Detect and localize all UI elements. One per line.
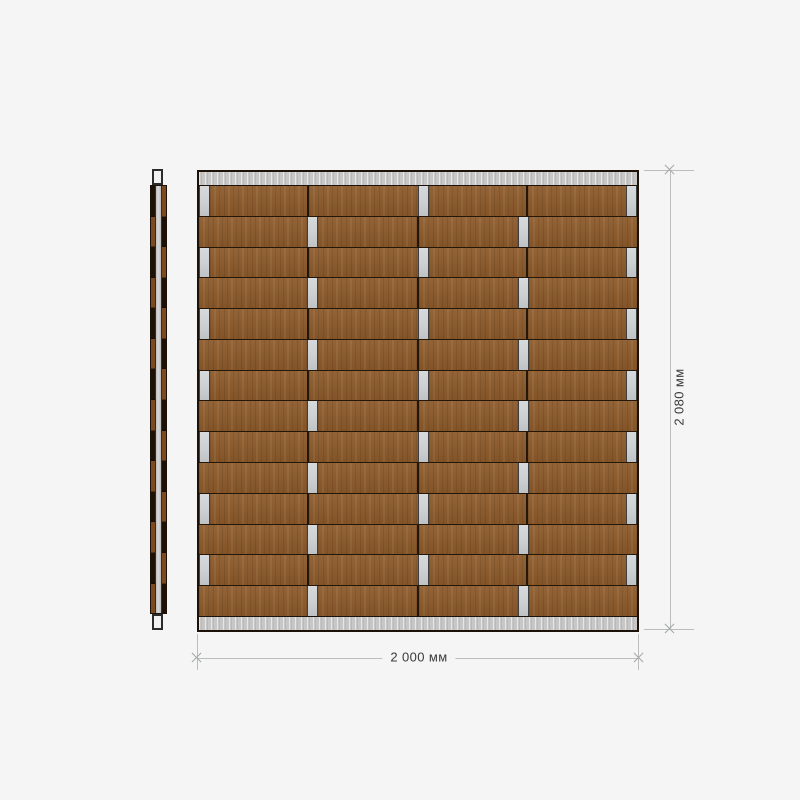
post-gap <box>626 309 637 339</box>
plank <box>307 248 418 278</box>
plank <box>417 401 518 431</box>
post-gap <box>626 494 637 524</box>
plank-row <box>199 586 637 616</box>
post-gap <box>307 525 318 555</box>
plank-row <box>199 555 637 586</box>
post-gap <box>518 586 529 616</box>
plank <box>210 555 307 585</box>
post-gap <box>199 371 210 401</box>
plank-row <box>199 186 637 217</box>
drawing-canvas: 2 000 мм 2 080 мм <box>0 0 800 800</box>
plank <box>529 278 637 308</box>
side-view-body <box>150 185 167 614</box>
plank <box>199 340 307 370</box>
plank-row <box>199 371 637 402</box>
post-gap <box>626 248 637 278</box>
side-plank-edge <box>162 369 166 400</box>
post-gap <box>199 432 210 462</box>
plank <box>429 371 526 401</box>
side-view-post <box>155 186 162 613</box>
post-gap <box>518 278 529 308</box>
plank-row <box>199 309 637 340</box>
post-gap <box>418 555 429 585</box>
plank <box>210 248 307 278</box>
plank <box>307 186 418 216</box>
plank <box>526 186 626 216</box>
side-plank-edge <box>162 461 166 492</box>
plank <box>307 371 418 401</box>
plank <box>307 555 418 585</box>
plank-rows <box>199 186 637 616</box>
post-gap <box>307 463 318 493</box>
side-plank-edge <box>162 186 166 217</box>
plank-row <box>199 432 637 463</box>
plank <box>199 463 307 493</box>
plank <box>529 586 637 616</box>
plank <box>429 309 526 339</box>
plank-row <box>199 248 637 279</box>
post-gap <box>518 340 529 370</box>
plank <box>417 463 518 493</box>
plank <box>210 494 307 524</box>
plank <box>417 586 518 616</box>
plank <box>318 586 417 616</box>
plank <box>429 186 526 216</box>
plank <box>526 494 626 524</box>
side-view-top-rail-section <box>152 169 163 185</box>
post-gap <box>518 217 529 247</box>
post-gap <box>199 555 210 585</box>
post-gap <box>418 494 429 524</box>
plank <box>318 217 417 247</box>
side-plank-edge <box>162 553 166 584</box>
plank <box>307 309 418 339</box>
side-plank-edge <box>162 278 166 309</box>
post-gap <box>307 401 318 431</box>
plank <box>526 371 626 401</box>
dimension-end-mark <box>663 163 676 176</box>
post-gap <box>418 309 429 339</box>
plank-row <box>199 340 637 371</box>
side-plank-edge <box>162 400 166 431</box>
side-plank-edge <box>162 247 166 278</box>
plank-row <box>199 401 637 432</box>
plank <box>417 278 518 308</box>
post-gap <box>199 309 210 339</box>
plank <box>417 340 518 370</box>
plank <box>199 217 307 247</box>
post-gap <box>199 186 210 216</box>
plank <box>429 432 526 462</box>
dimension-end-mark <box>190 651 203 664</box>
side-view-front-planks <box>162 186 166 613</box>
plank <box>529 463 637 493</box>
plank-row <box>199 278 637 309</box>
post-gap <box>307 278 318 308</box>
post-gap <box>518 401 529 431</box>
plank <box>429 248 526 278</box>
plank <box>417 525 518 555</box>
post-gap <box>418 371 429 401</box>
side-view <box>150 169 167 631</box>
side-plank-edge <box>162 431 166 462</box>
plank <box>526 555 626 585</box>
plank <box>318 278 417 308</box>
plank <box>529 340 637 370</box>
post-gap <box>307 340 318 370</box>
plank <box>429 494 526 524</box>
top-rail <box>199 172 637 186</box>
post-gap <box>418 432 429 462</box>
plank <box>210 371 307 401</box>
plank <box>318 340 417 370</box>
plank <box>529 525 637 555</box>
plank <box>529 217 637 247</box>
front-view <box>197 170 639 632</box>
plank <box>526 248 626 278</box>
plank <box>429 555 526 585</box>
plank <box>199 401 307 431</box>
plank-row <box>199 463 637 494</box>
plank <box>199 525 307 555</box>
plank <box>199 586 307 616</box>
side-plank-edge <box>162 308 166 339</box>
dimension-end-mark <box>632 651 645 664</box>
side-plank-edge <box>162 584 166 614</box>
plank <box>417 217 518 247</box>
post-gap <box>518 525 529 555</box>
plank <box>318 401 417 431</box>
bottom-rail <box>199 616 637 630</box>
plank <box>318 463 417 493</box>
post-gap <box>418 248 429 278</box>
dimension-height-label: 2 080 мм <box>672 360 687 433</box>
side-plank-edge <box>162 492 166 523</box>
post-gap <box>626 432 637 462</box>
plank <box>210 432 307 462</box>
dimension-width-label: 2 000 мм <box>382 650 455 665</box>
side-plank-edge <box>162 522 166 553</box>
plank <box>307 494 418 524</box>
post-gap <box>626 555 637 585</box>
plank <box>526 432 626 462</box>
plank <box>526 309 626 339</box>
side-view-bottom-rail-section <box>152 614 163 630</box>
plank <box>199 278 307 308</box>
side-plank-edge <box>162 217 166 248</box>
side-plank-edge <box>162 339 166 370</box>
plank-row <box>199 525 637 556</box>
post-gap <box>418 186 429 216</box>
plank <box>210 309 307 339</box>
plank <box>529 401 637 431</box>
post-gap <box>626 371 637 401</box>
plank <box>318 525 417 555</box>
plank <box>307 432 418 462</box>
plank <box>210 186 307 216</box>
post-gap <box>518 463 529 493</box>
dimension-end-mark <box>663 622 676 635</box>
post-gap <box>199 494 210 524</box>
post-gap <box>307 586 318 616</box>
plank-row <box>199 494 637 525</box>
post-gap <box>307 217 318 247</box>
plank-row <box>199 217 637 248</box>
post-gap <box>626 186 637 216</box>
post-gap <box>199 248 210 278</box>
